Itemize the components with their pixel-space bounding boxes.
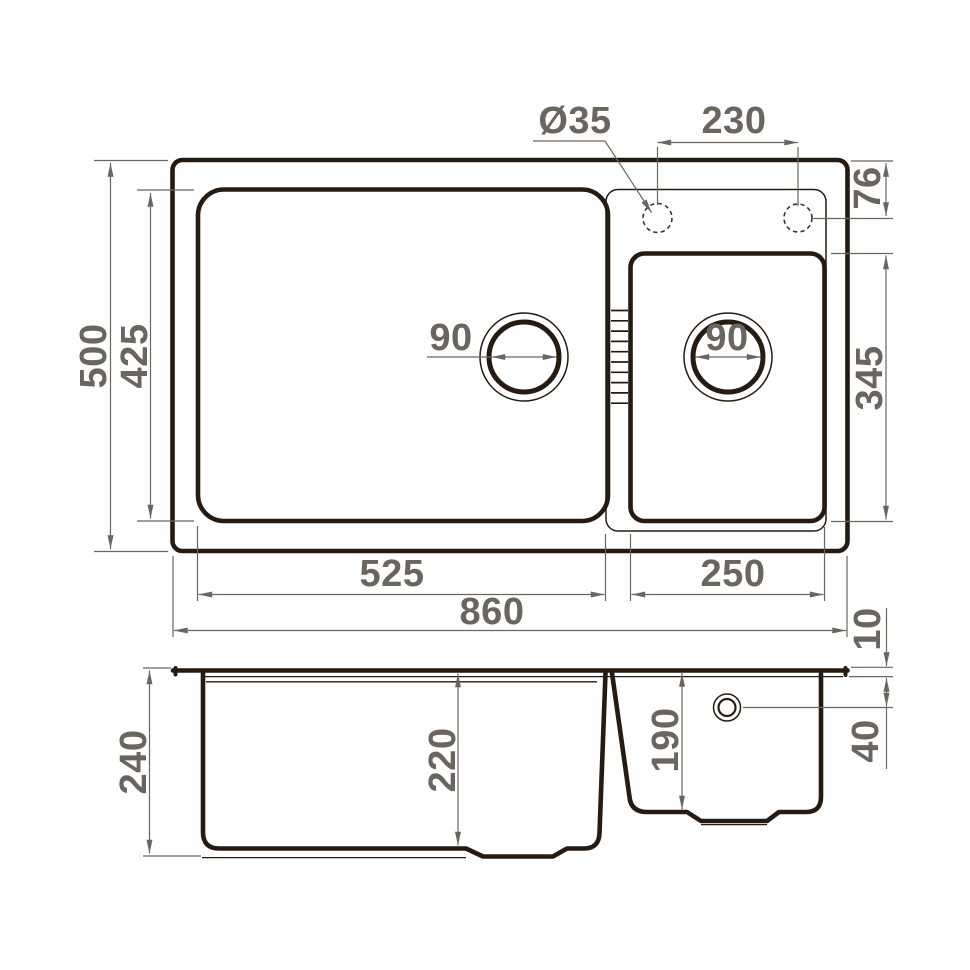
dim-label-second-bowl-inner-depth: 190 — [645, 708, 687, 773]
dim-label-faucet-hole-spacing: 230 — [702, 100, 767, 142]
dim-faucet-hole-diameter: Ø35 — [533, 100, 652, 213]
dim-overflow-offset: 40 — [743, 678, 893, 769]
dim-total-height: 240 — [113, 668, 201, 856]
sink-technical-drawing-page: 500 425 Ø35 230 76 — [0, 0, 970, 970]
dim-label-overall-width: 860 — [460, 591, 525, 633]
dim-label-rim-lip: 10 — [847, 607, 889, 650]
dim-second-drain: 90 — [696, 317, 761, 359]
second-bowl-outline — [631, 254, 825, 522]
dim-label-main-bowl-depth: 425 — [114, 324, 156, 389]
sink-technical-drawing: 500 425 Ø35 230 76 — [0, 0, 970, 970]
dim-label-overall-depth: 500 — [73, 324, 115, 389]
dim-main-bowl-depth: 425 — [114, 190, 194, 521]
dim-main-bowl-inner-depth: 220 — [422, 674, 464, 846]
dim-label-second-drain: 90 — [705, 317, 748, 359]
dim-faucet-edge-offset: 76 — [812, 161, 893, 219]
dim-label-second-bowl-width: 250 — [701, 553, 766, 595]
dim-label-main-bowl-inner-depth: 220 — [422, 728, 464, 793]
main-bowl-outline — [198, 190, 608, 522]
section-main-bowl-profile — [203, 673, 606, 857]
section-view: 240 220 190 10 40 — [113, 607, 893, 857]
dim-label-second-bowl-depth: 345 — [849, 346, 891, 411]
dim-second-bowl-width: 250 — [631, 527, 825, 601]
section-second-bowl-profile — [612, 673, 821, 821]
dim-label-main-drain: 90 — [429, 317, 472, 359]
dim-label-faucet-edge-offset: 76 — [847, 166, 889, 209]
dim-rim-lip: 10 — [847, 607, 893, 676]
faucet-hole-right — [784, 204, 812, 232]
overflow-hole — [714, 694, 741, 721]
dim-second-bowl-inner-depth: 190 — [645, 673, 687, 810]
dim-label-total-height: 240 — [113, 730, 155, 795]
drainage-grooves — [611, 311, 628, 404]
deck-area-outline — [606, 190, 826, 532]
top-view: 500 425 Ø35 230 76 — [73, 100, 893, 637]
dim-label-overflow-offset: 40 — [845, 719, 887, 762]
faucet-hole-left — [643, 204, 672, 233]
dim-label-main-bowl-width: 525 — [360, 553, 425, 595]
dim-main-bowl-width: 525 — [198, 526, 606, 601]
dim-second-bowl-depth: 345 — [831, 254, 893, 522]
dim-label-faucet-hole-diameter: Ø35 — [538, 100, 611, 142]
